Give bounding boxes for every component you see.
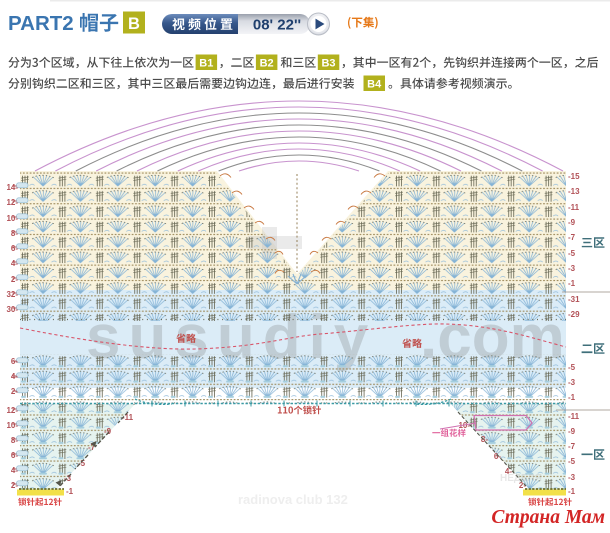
svg-text:-5: -5 (568, 249, 576, 258)
svg-text:30-: 30- (6, 305, 18, 314)
svg-text:-29: -29 (568, 310, 580, 319)
svg-text:-13: -13 (568, 187, 580, 196)
svg-text:8-: 8- (11, 436, 18, 445)
svg-text:B4: B4 (367, 79, 382, 91)
svg-text:B3: B3 (321, 58, 335, 70)
svg-text:B: B (128, 15, 140, 33)
svg-text:2-: 2- (11, 481, 18, 490)
svg-text:12-: 12- (6, 406, 18, 415)
svg-text:10-: 10- (6, 421, 18, 430)
svg-text:-5: -5 (78, 459, 86, 468)
svg-text:-3: -3 (568, 264, 576, 273)
svg-text:-1: -1 (568, 393, 576, 402)
svg-text:4-: 4- (11, 259, 18, 268)
svg-text:-3: -3 (568, 378, 576, 387)
svg-text:6-: 6- (11, 244, 18, 253)
svg-text:-1: -1 (66, 487, 74, 496)
svg-text:-15: -15 (568, 172, 580, 181)
svg-text:-3: -3 (568, 473, 576, 482)
svg-text:Страна Мам: Страна Мам (491, 507, 605, 528)
svg-text:-7: -7 (568, 233, 576, 242)
svg-text:НЕДЕЛЯ: НЕДЕЛЯ (500, 473, 542, 484)
svg-text:-11: -11 (568, 412, 580, 421)
svg-text:-5: -5 (568, 363, 576, 372)
svg-text:14-: 14- (6, 183, 18, 192)
svg-text:-5: -5 (568, 457, 576, 466)
svg-text:12-: 12- (6, 198, 18, 207)
svg-text:-31: -31 (568, 295, 580, 304)
svg-text:-7: -7 (568, 442, 576, 451)
svg-text:radinova club 132: radinova club 132 (238, 492, 348, 507)
svg-text:4-: 4- (11, 466, 18, 475)
svg-text:08' 22'': 08' 22'' (253, 17, 301, 34)
svg-text:10-: 10- (6, 214, 18, 223)
svg-text:-9: -9 (568, 427, 576, 436)
svg-text:-9: -9 (104, 427, 112, 436)
svg-text:-9: -9 (568, 218, 576, 227)
svg-text:-1: -1 (568, 487, 576, 496)
svg-text:6-: 6- (11, 451, 18, 460)
svg-text:6-: 6- (494, 452, 501, 461)
svg-text:4-: 4- (11, 372, 18, 381)
svg-text:PART2: PART2 (8, 12, 74, 35)
svg-text:32-: 32- (6, 290, 18, 299)
svg-text:2-: 2- (11, 275, 18, 284)
svg-text:B2: B2 (260, 58, 274, 70)
svg-text:2-: 2- (11, 387, 18, 396)
svg-text:8-: 8- (481, 435, 488, 444)
svg-text:8-: 8- (11, 229, 18, 238)
svg-text:B1: B1 (199, 58, 213, 70)
svg-text:6-: 6- (11, 357, 18, 366)
svg-text:-1: -1 (568, 279, 576, 288)
svg-text:-11: -11 (568, 203, 580, 212)
